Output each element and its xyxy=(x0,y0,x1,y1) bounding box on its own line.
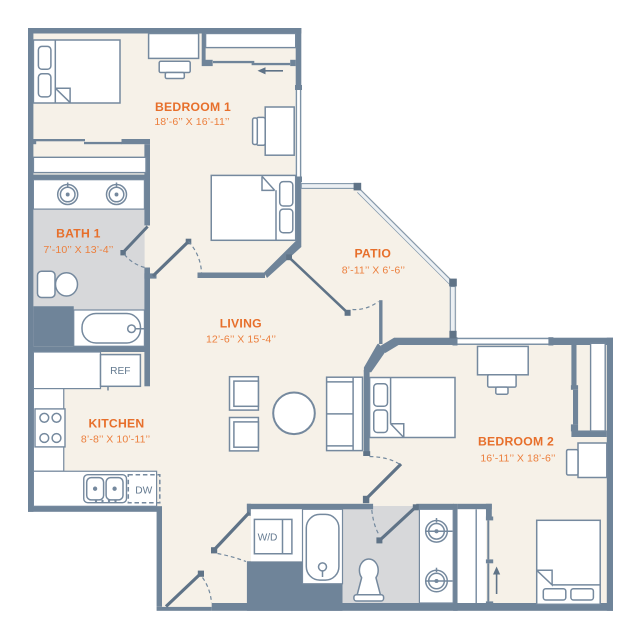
svg-text:LIVING: LIVING xyxy=(220,317,262,331)
svg-text:16’-11’’ X 18’-6’’: 16’-11’’ X 18’-6’’ xyxy=(480,453,555,465)
svg-text:BEDROOM 1: BEDROOM 1 xyxy=(155,100,231,114)
svg-text:DW: DW xyxy=(135,486,152,497)
svg-text:8’-8’’ X 10’-11’’: 8’-8’’ X 10’-11’’ xyxy=(81,434,150,446)
svg-text:BATH 1: BATH 1 xyxy=(56,227,101,241)
svg-text:BEDROOM 2: BEDROOM 2 xyxy=(478,434,554,448)
svg-text:W/D: W/D xyxy=(258,533,278,544)
svg-text:12’-6’’ X 15’-4’’: 12’-6’’ X 15’-4’’ xyxy=(206,334,276,346)
svg-text:REF: REF xyxy=(110,366,130,377)
svg-text:KITCHEN: KITCHEN xyxy=(89,417,145,431)
svg-text:PATIO: PATIO xyxy=(354,247,391,261)
svg-text:8’-11’’ X 6’-6’’: 8’-11’’ X 6’-6’’ xyxy=(342,265,405,277)
svg-text:18’-6’’ X 16’-11’’: 18’-6’’ X 16’-11’’ xyxy=(154,116,229,128)
svg-text:7’-10’’ X 13’-4’’: 7’-10’’ X 13’-4’’ xyxy=(43,244,113,256)
